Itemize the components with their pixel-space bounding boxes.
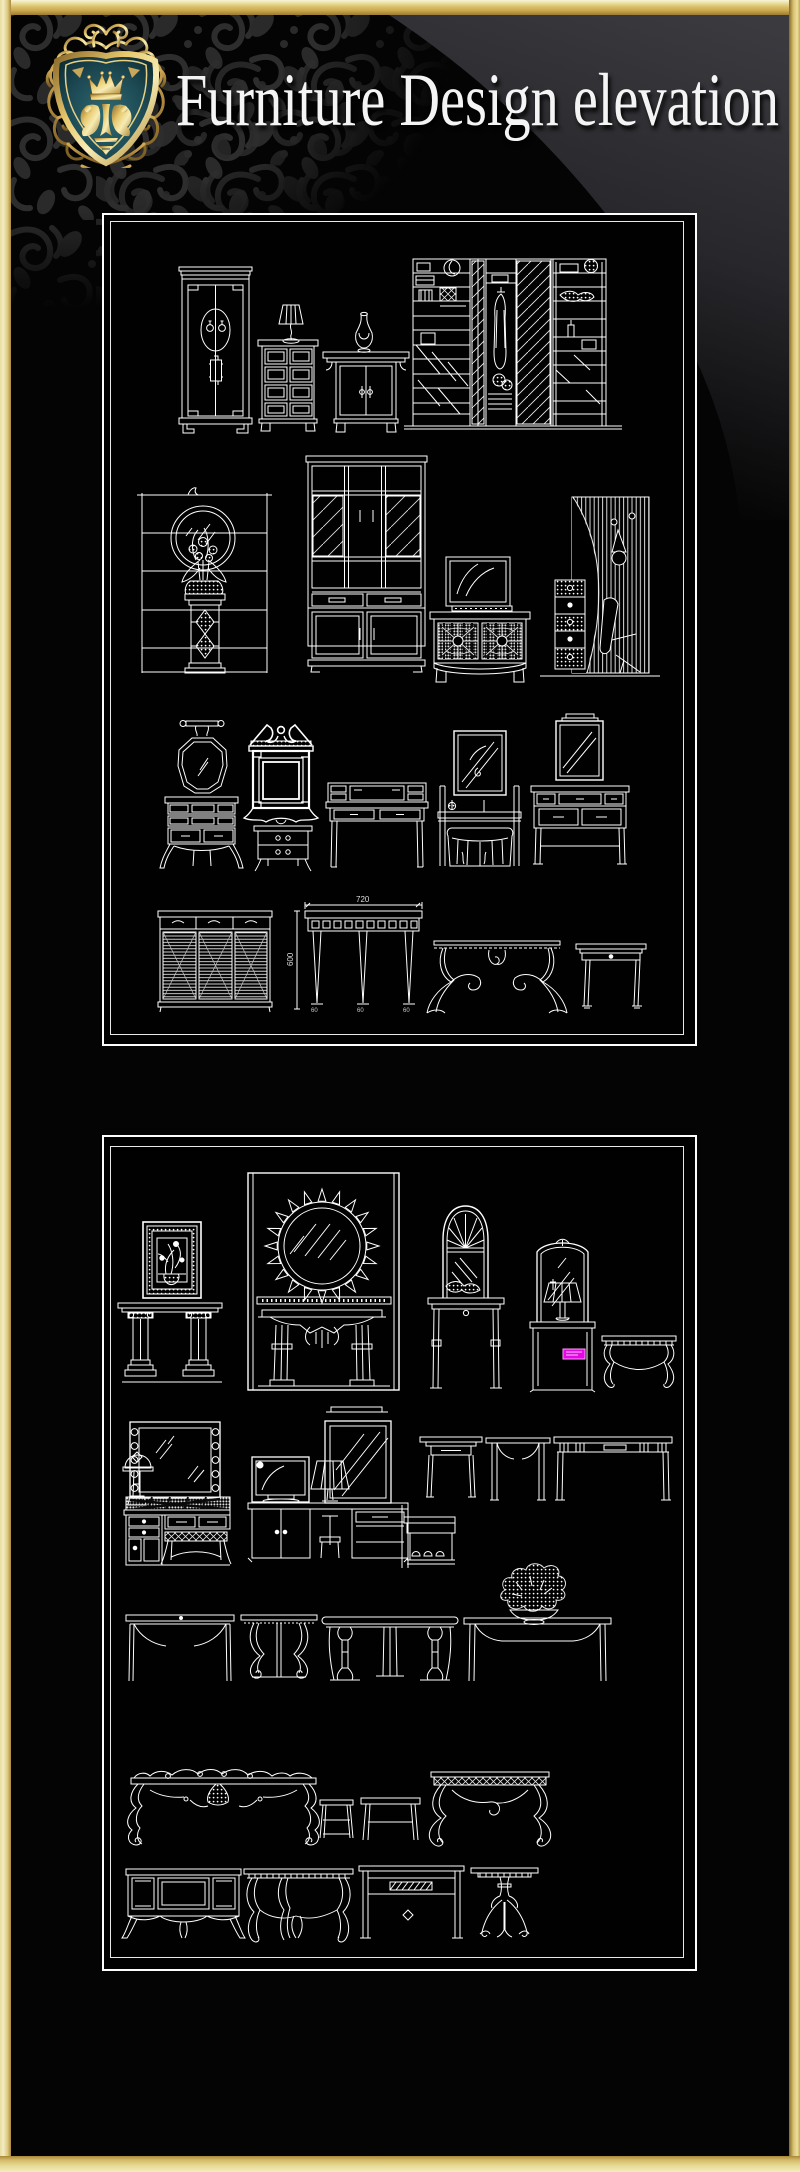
- svg-text:60: 60: [357, 1008, 364, 1014]
- svg-text:600: 600: [286, 952, 295, 966]
- svg-text:60: 60: [311, 1008, 318, 1014]
- svg-text:60: 60: [403, 1008, 410, 1014]
- svg-text:720: 720: [356, 895, 370, 904]
